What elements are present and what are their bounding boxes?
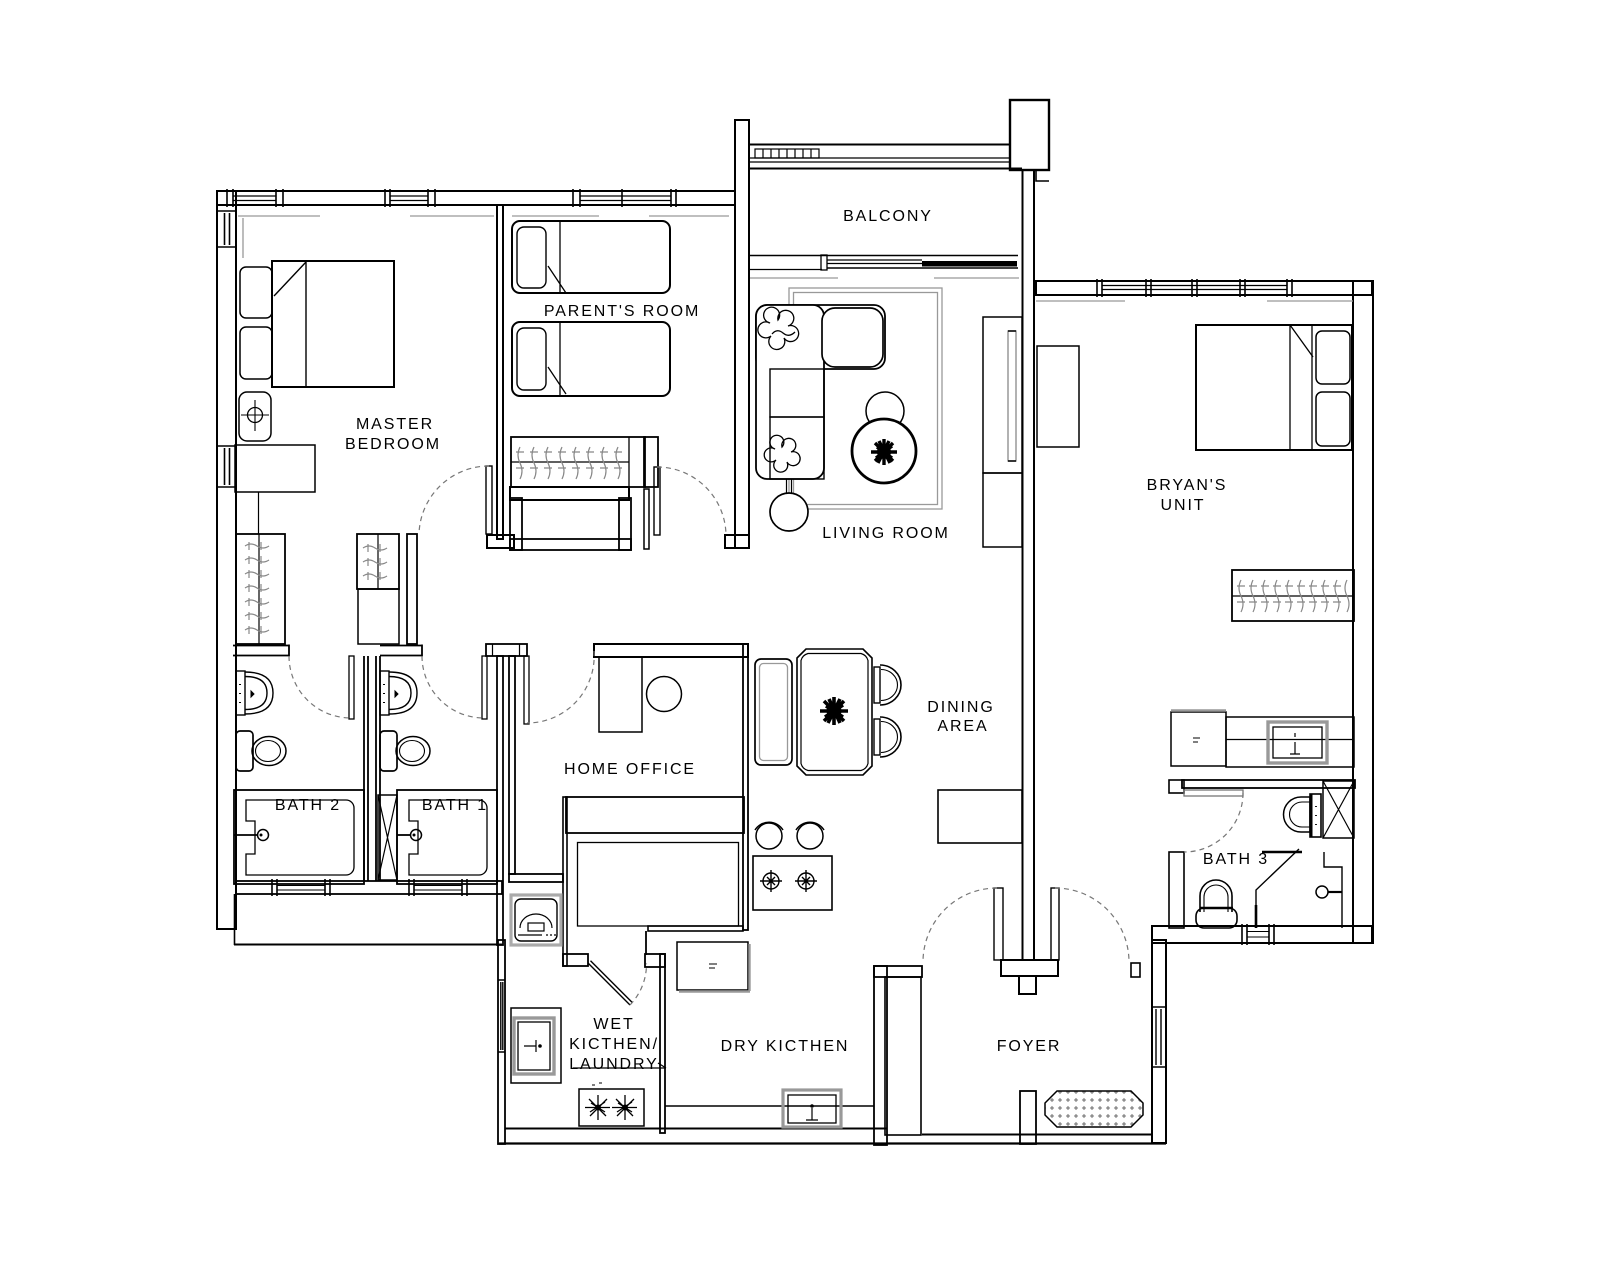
svg-text:WET: WET bbox=[593, 1016, 634, 1033]
svg-text:FOYER: FOYER bbox=[997, 1038, 1062, 1055]
svg-text:LIVING ROOM: LIVING ROOM bbox=[822, 525, 950, 542]
svg-text:HOME OFFICE: HOME OFFICE bbox=[564, 761, 696, 778]
svg-text:BATH 1: BATH 1 bbox=[422, 797, 488, 814]
svg-text:MASTER: MASTER bbox=[356, 416, 434, 433]
svg-text:BATH 2: BATH 2 bbox=[275, 797, 341, 814]
svg-text:DINING: DINING bbox=[927, 699, 994, 716]
svg-text:KICTHEN/: KICTHEN/ bbox=[569, 1036, 659, 1053]
svg-text:UNIT: UNIT bbox=[1161, 497, 1206, 514]
svg-text:BEDROOM: BEDROOM bbox=[345, 436, 441, 453]
svg-text:PARENT'S ROOM: PARENT'S ROOM bbox=[544, 303, 700, 320]
svg-text:BATH 3: BATH 3 bbox=[1203, 851, 1269, 868]
svg-text:BALCONY: BALCONY bbox=[843, 208, 933, 225]
svg-text:DRY KICTHEN: DRY KICTHEN bbox=[721, 1038, 850, 1055]
svg-text:LAUNDRY: LAUNDRY bbox=[569, 1056, 658, 1073]
svg-text:BRYAN'S: BRYAN'S bbox=[1147, 477, 1228, 494]
svg-text:AREA: AREA bbox=[937, 718, 988, 735]
